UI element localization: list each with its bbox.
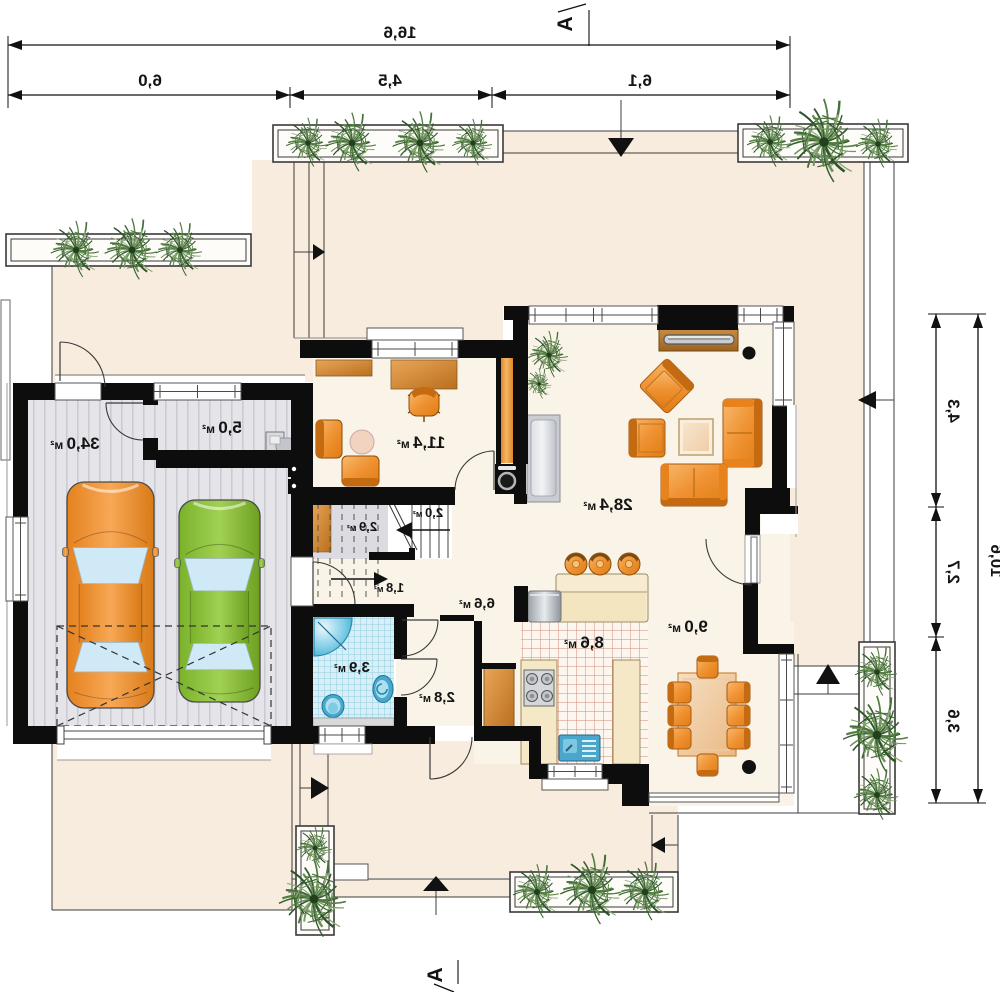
svg-text:2,7: 2,7 xyxy=(944,560,963,584)
svg-text:4,5: 4,5 xyxy=(378,71,402,90)
svg-text:6,1: 6,1 xyxy=(628,71,652,90)
svg-text:10,6: 10,6 xyxy=(987,544,1000,577)
svg-text:3,6: 3,6 xyxy=(944,709,963,733)
svg-text:6,0: 6,0 xyxy=(138,71,162,90)
svg-text:A: A xyxy=(554,16,577,31)
svg-text:A: A xyxy=(424,967,447,982)
svg-text:16,6: 16,6 xyxy=(383,23,416,42)
svg-text:4,3: 4,3 xyxy=(944,399,963,423)
